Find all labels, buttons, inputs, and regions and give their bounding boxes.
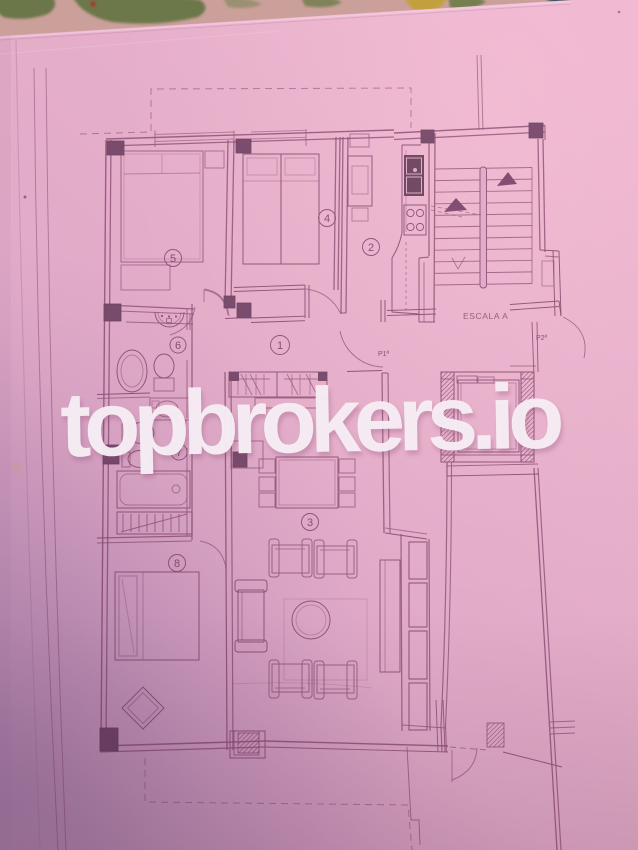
svg-text:3: 3 xyxy=(307,517,313,529)
svg-text:P1ª: P1ª xyxy=(378,351,390,358)
svg-text:topbrokers.io: topbrokers.io xyxy=(60,366,562,477)
svg-text:1: 1 xyxy=(277,340,283,352)
svg-text:ESCALA A: ESCALA A xyxy=(463,311,508,321)
svg-text:2: 2 xyxy=(368,242,374,254)
svg-text:6: 6 xyxy=(175,340,181,352)
svg-text:P2ª: P2ª xyxy=(536,335,548,342)
svg-text:5: 5 xyxy=(170,253,176,265)
svg-text:4: 4 xyxy=(324,213,330,225)
svg-text:8: 8 xyxy=(174,558,180,570)
